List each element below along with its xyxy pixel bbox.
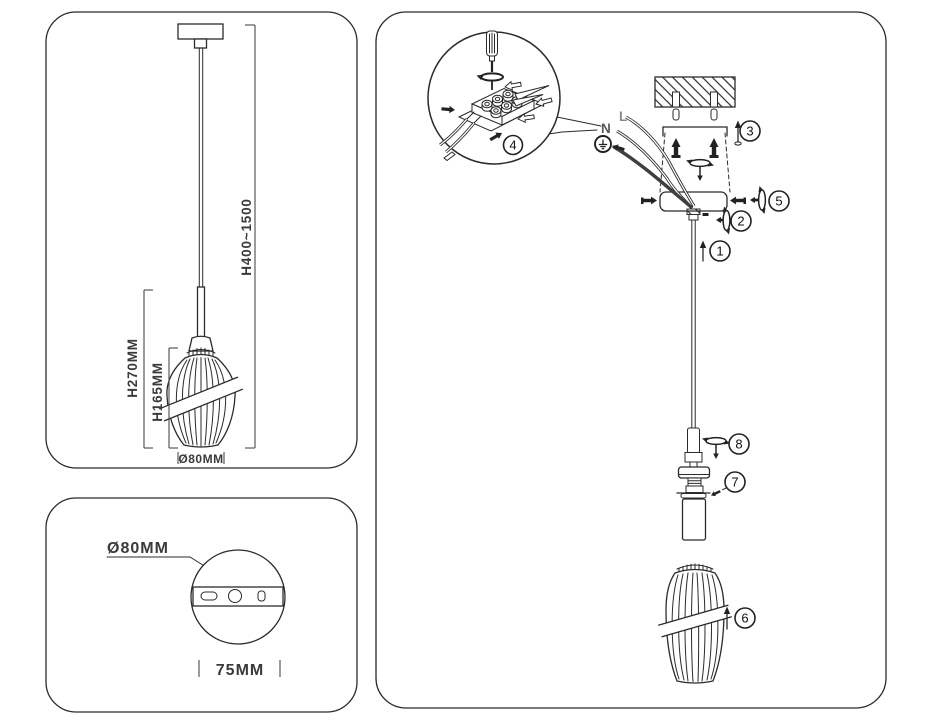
svg-text:7: 7 (731, 475, 738, 490)
canopy-bottom-view (191, 550, 285, 644)
hole-spacing-label: 75MM (216, 662, 264, 679)
dim-label-shade-diameter: Ø80MM (178, 452, 223, 466)
earth-ground-icon (595, 136, 611, 152)
drill-hole (673, 92, 680, 107)
step-3-badge: 3 (740, 121, 760, 141)
installation-panel: 3 N L 5 2 (376, 12, 886, 708)
svg-text:2: 2 (737, 214, 744, 229)
dim-label-overall-drop: H400~1500 (239, 198, 254, 275)
wire-live-label: L (619, 109, 627, 124)
svg-text:4: 4 (509, 138, 516, 153)
step-1-badge: 1 (710, 241, 730, 261)
lamp-installation-diagram: H400~1500 H270MM H165MM Ø80MM Ø80MM 75MM (0, 0, 925, 720)
canopy-plate (660, 192, 727, 211)
dimension-drawing-panel: H400~1500 H270MM H165MM Ø80MM (46, 12, 357, 468)
svg-text:3: 3 (746, 124, 753, 139)
canopy-detail-panel: Ø80MM 75MM (46, 498, 357, 712)
dim-label-shade-height: H165MM (150, 362, 165, 422)
drill-hole (711, 92, 718, 107)
threaded-nipple (688, 478, 701, 486)
svg-text:5: 5 (775, 194, 782, 209)
shade-ring (681, 494, 706, 499)
shade-holder-disc (679, 467, 710, 478)
wiring-detail-circle: 4 (428, 31, 560, 164)
ceiling-hatch (655, 77, 735, 107)
step-4-badge: 4 (504, 136, 523, 155)
step-8-badge: 8 (729, 434, 749, 454)
diagram-canvas: H400~1500 H270MM H165MM Ø80MM Ø80MM 75MM (0, 0, 925, 720)
svg-text:6: 6 (741, 611, 748, 626)
cord-stem (198, 287, 205, 338)
step-5-badge: 5 (769, 191, 789, 211)
step-7-badge: 7 (725, 472, 745, 492)
step-2-badge: 2 (731, 211, 751, 231)
dim-label-fixture-height: H270MM (125, 338, 140, 398)
svg-text:8: 8 (735, 437, 742, 452)
step-6-badge: 6 (735, 608, 755, 628)
wire-neutral-label: N (601, 121, 611, 136)
screw-head (641, 198, 644, 205)
svg-text:1: 1 (716, 244, 723, 259)
canopy-diameter-label: Ø80MM (107, 540, 169, 557)
lamp-socket (683, 499, 706, 540)
screw-head (744, 198, 747, 205)
